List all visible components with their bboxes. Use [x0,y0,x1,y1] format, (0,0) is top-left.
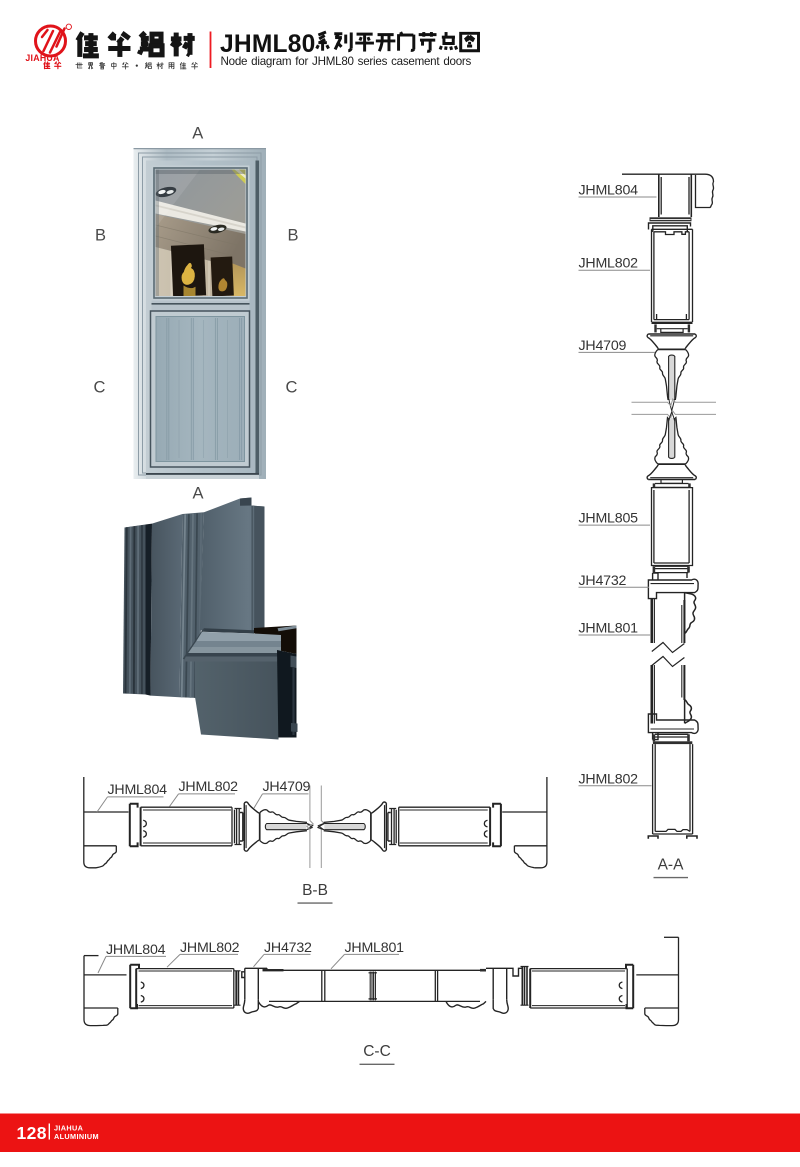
svg-text:A: A [192,124,203,142]
svg-text:C: C [286,378,298,396]
svg-text:JH4709: JH4709 [579,338,627,354]
svg-text:JH4709: JH4709 [263,779,311,795]
svg-text:C: C [94,378,106,396]
svg-text:JHML804: JHML804 [106,942,166,958]
svg-text:B: B [287,226,298,244]
svg-text:JHML80: JHML80 [220,31,316,58]
svg-text:JHML802: JHML802 [180,940,240,956]
svg-text:Node diagram for JHML80 series: Node diagram for JHML80 series casement … [221,55,472,68]
svg-text:JH4732: JH4732 [264,940,312,956]
svg-text:A-A: A-A [658,857,685,874]
svg-text:C-C: C-C [363,1043,391,1060]
svg-text:JHML804: JHML804 [108,782,168,798]
svg-text:JHML802: JHML802 [179,779,239,795]
svg-text:ALUMINIUM: ALUMINIUM [54,1132,99,1141]
svg-text:JHML801: JHML801 [345,940,405,956]
svg-text:JH4732: JH4732 [579,573,627,589]
svg-text:JHML802: JHML802 [579,771,639,787]
svg-text:B: B [95,226,106,244]
svg-text:JHML801: JHML801 [579,621,639,637]
svg-text:JIAHUA: JIAHUA [25,53,60,63]
svg-text:A: A [192,484,203,502]
svg-text:JHML805: JHML805 [579,511,639,527]
svg-text:B-B: B-B [302,882,328,899]
svg-text:JHML802: JHML802 [579,256,639,272]
svg-text:128: 128 [17,1123,47,1143]
svg-text:JHML804: JHML804 [579,183,639,199]
